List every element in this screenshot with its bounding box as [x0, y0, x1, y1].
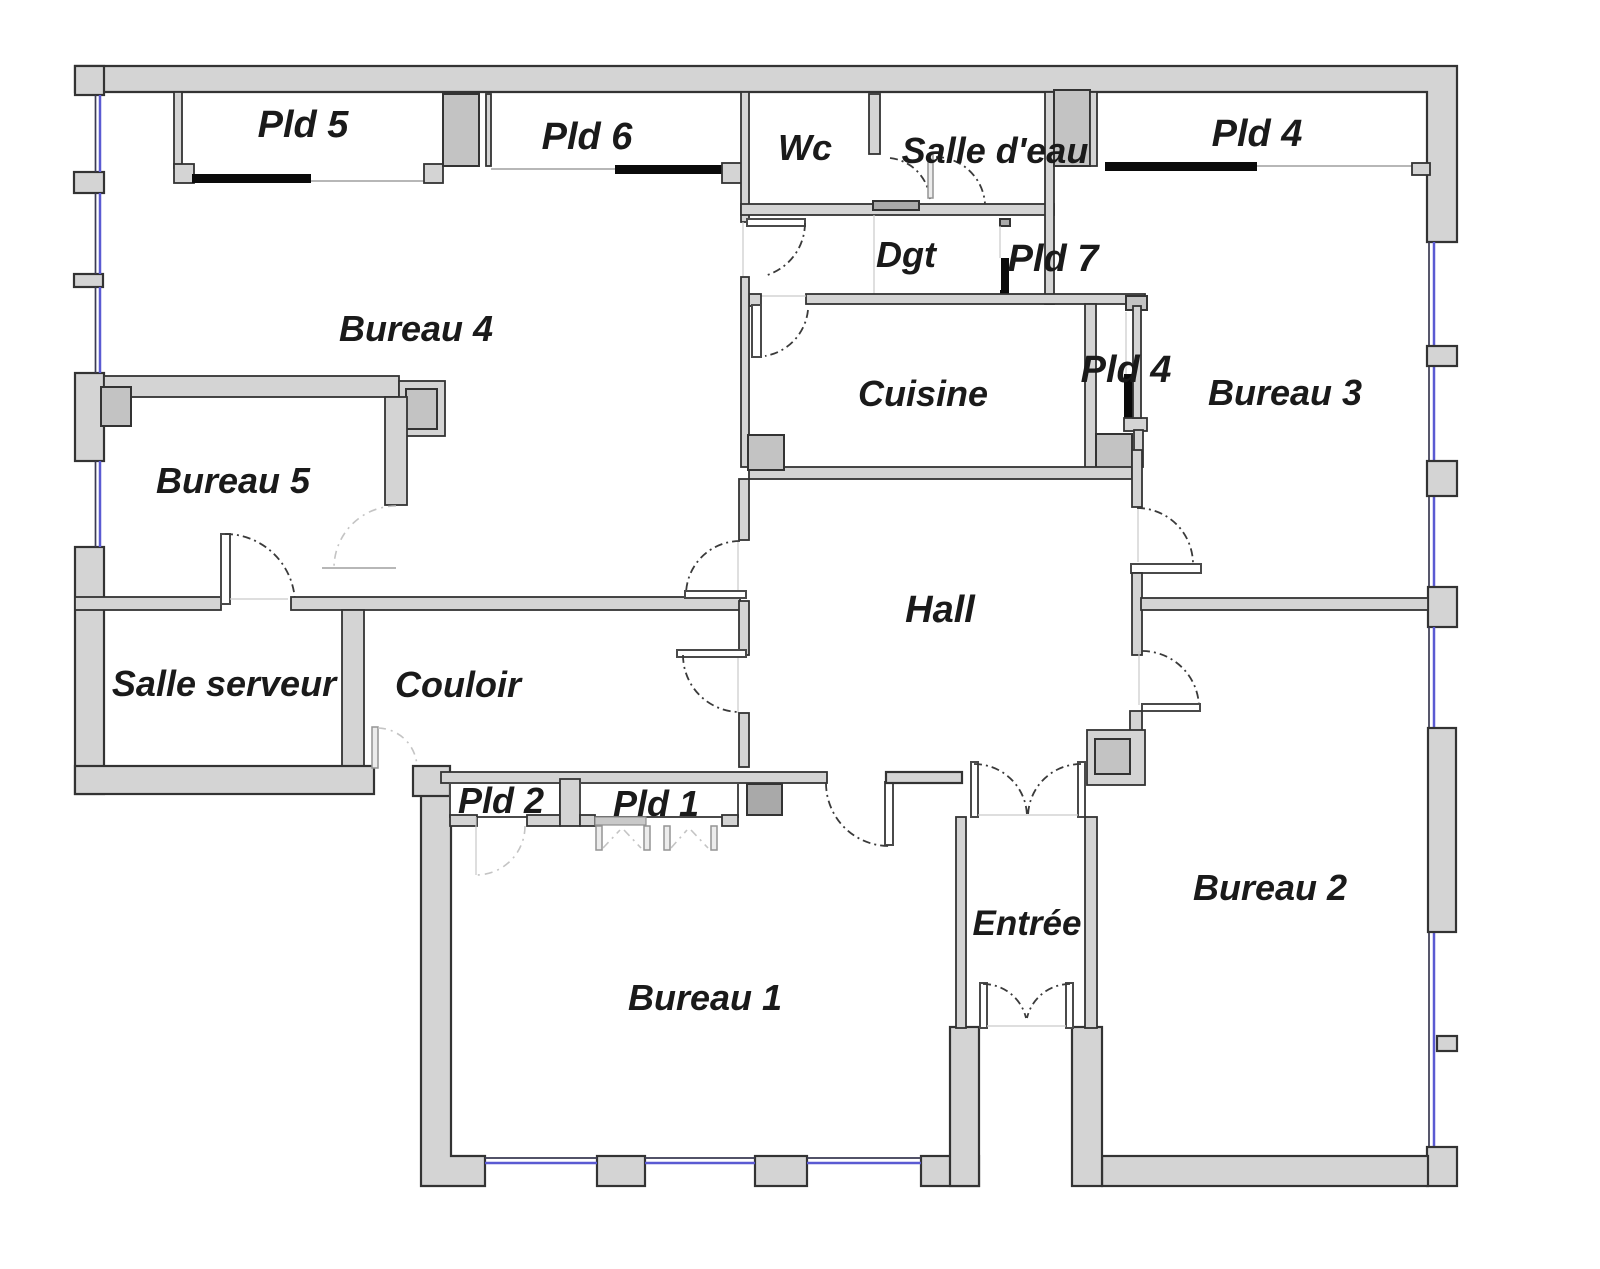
svg-text:Pld 6: Pld 6 [542, 116, 634, 158]
svg-text:Pld 1: Pld 1 [613, 783, 699, 824]
svg-text:Pld 7: Pld 7 [1008, 238, 1101, 280]
svg-text:Hall: Hall [905, 589, 976, 631]
svg-text:Bureau 2: Bureau 2 [1193, 867, 1347, 908]
svg-text:Dgt: Dgt [876, 234, 938, 275]
svg-text:Wc: Wc [778, 127, 832, 168]
svg-text:Bureau 3: Bureau 3 [1208, 372, 1362, 413]
svg-text:Salle d'eau: Salle d'eau [902, 130, 1089, 171]
svg-text:Pld 5: Pld 5 [258, 104, 350, 146]
svg-text:Couloir: Couloir [395, 664, 523, 705]
svg-text:Pld 4: Pld 4 [1212, 113, 1303, 155]
svg-text:Pld 4: Pld 4 [1081, 349, 1172, 391]
svg-text:Salle serveur: Salle serveur [112, 663, 338, 704]
svg-text:Cuisine: Cuisine [858, 373, 988, 414]
svg-text:Pld 2: Pld 2 [458, 780, 544, 821]
svg-text:Bureau 4: Bureau 4 [339, 308, 493, 349]
svg-text:Bureau 1: Bureau 1 [628, 977, 782, 1018]
svg-text:Bureau 5: Bureau 5 [156, 460, 311, 501]
svg-text:Entrée: Entrée [973, 904, 1082, 943]
